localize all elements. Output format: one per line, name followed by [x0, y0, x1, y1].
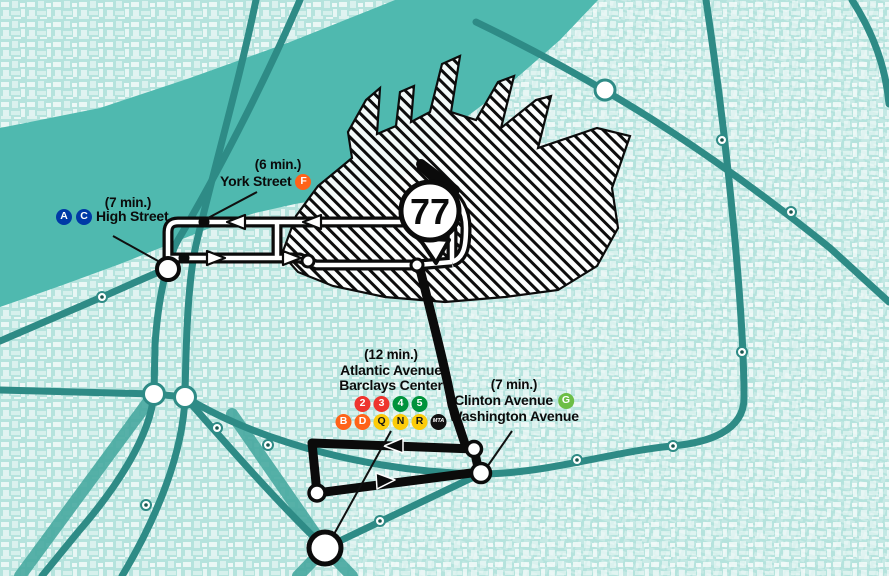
high-street-label: A C High Street	[56, 209, 168, 225]
subway-bullet-4: 4	[393, 396, 409, 412]
subway-bullet-3: 3	[374, 396, 390, 412]
york-street-name: York Street	[220, 174, 291, 190]
high-street-terminal-circle	[157, 258, 179, 280]
subway-bullet-5: 5	[412, 396, 428, 412]
atlantic-bullets-row2: B D Q N R MTA	[336, 414, 447, 430]
south-loop-stop-ne	[467, 442, 482, 457]
subway-bullet-d: D	[355, 414, 371, 430]
atlantic-name-line1: Atlantic Avenue	[336, 363, 447, 379]
subway-bullet-2: 2	[355, 396, 371, 412]
route-number: 77	[410, 191, 450, 232]
york-street-stop-dot	[199, 217, 210, 228]
subway-bullet-n: N	[393, 414, 409, 430]
clinton-name-line1: Clinton Avenue	[454, 393, 553, 409]
south-loop-stop-sw	[309, 485, 325, 501]
navy-yard-stop-west	[302, 255, 314, 267]
atlantic-name-line2: Barclays Center	[336, 378, 447, 394]
subway-bullet-a: A	[56, 209, 72, 225]
clinton-washington-label: (7 min.) Clinton Avenue G Washington Ave…	[449, 377, 579, 424]
clinton-name-line2: Washington Avenue	[449, 409, 579, 425]
map-canvas: 77	[0, 0, 889, 576]
subway-bullet-f: F	[295, 174, 311, 190]
clinton-washington-station-circle	[472, 464, 491, 483]
high-street-name: High Street	[96, 209, 168, 225]
subway-line-west	[0, 390, 154, 394]
high-street-stop-dot	[179, 253, 190, 264]
atlantic-terminal-circle	[309, 532, 341, 564]
subway-bullet-b: B	[336, 414, 352, 430]
york-street-time: (6 min.)	[255, 157, 301, 173]
lirr-logo-icon: MTA	[431, 414, 447, 430]
clinton-name-row: Clinton Avenue G	[449, 393, 579, 409]
atlantic-time: (12 min.)	[336, 347, 447, 363]
clinton-time: (7 min.)	[449, 377, 579, 393]
subway-bullet-r: R	[412, 414, 428, 430]
york-street-label: York Street F	[220, 174, 311, 190]
subway-bullet-q: Q	[374, 414, 390, 430]
navy-yard-stop-east	[411, 259, 423, 271]
subway-bullet-g: G	[558, 393, 574, 409]
atlantic-avenue-label: (12 min.) Atlantic Avenue Barclays Cente…	[336, 347, 447, 430]
atlantic-bullets-row1: 2 3 4 5	[336, 396, 447, 412]
transit-route-map[interactable]: 77 (7 min.) A C High Street (6 min.) Yor…	[0, 0, 889, 576]
subway-bullet-c: C	[76, 209, 92, 225]
